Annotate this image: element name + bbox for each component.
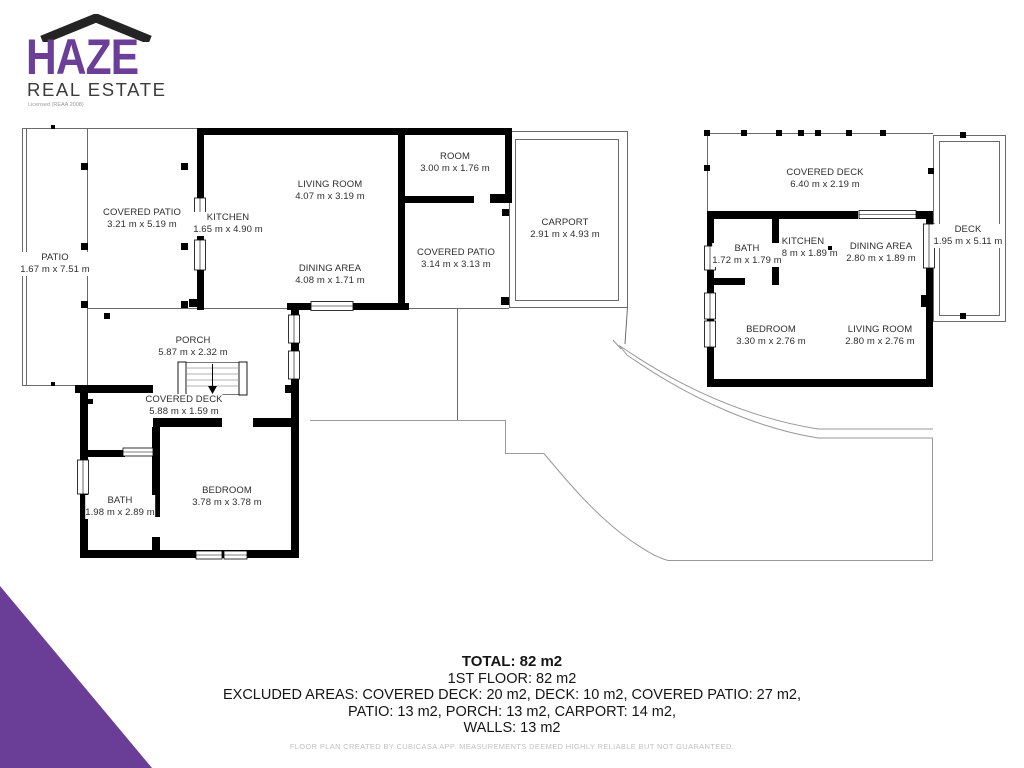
room-label-carport: CARPORT2.91 m x 4.93 m: [530, 217, 600, 241]
disclaimer-text: FLOOR PLAN CREATED BY CUBICASA APP. MEAS…: [0, 742, 1024, 751]
logo: HAZE REAL ESTATE Licensed (REAA 2008): [26, 14, 226, 110]
main-walls: [51, 125, 512, 558]
room-label-bedroom: BEDROOM3.78 m x 3.78 m: [192, 485, 262, 509]
stairs-down-arrow-icon: [208, 386, 217, 394]
room-label-covered-deck: COVERED DECK5.88 m x 1.59 m: [145, 394, 222, 418]
room-label-dining-area: DINING AREA4.08 m x 1.71 m: [295, 263, 365, 287]
room-label-covered-patio: COVERED PATIO3.21 m x 5.19 m: [103, 207, 181, 231]
room-label-2-bedroom: BEDROOM3.30 m x 2.76 m: [736, 324, 806, 348]
summary-first-floor: 1ST FLOOR: 82 m2: [0, 671, 1024, 688]
room-label-living-room: LIVING ROOM4.07 m x 3.19 m: [295, 179, 365, 203]
room-label-bath: BATH1.98 m x 2.89 m: [85, 495, 155, 519]
room-label-2-deck: DECK1.95 m x 5.11 m: [934, 224, 1003, 248]
room-label-porch: PORCH5.87 m x 2.32 m: [158, 335, 228, 359]
stairs: [178, 362, 247, 395]
room-label-2-living-room: LIVING ROOM2.80 m x 2.76 m: [845, 324, 915, 348]
room-label-room: ROOM3.00 m x 1.76 m: [420, 151, 490, 175]
room-label-patio: PATIO1.67 m x 7.51 m: [20, 252, 90, 276]
summary-total: TOTAL: 82 m2: [0, 654, 1024, 671]
summary-excluded-1: EXCLUDED AREAS: COVERED DECK: 20 m2, DEC…: [0, 687, 1024, 704]
room-label-2-bath: BATH1.72 m x 1.79 m: [712, 243, 782, 267]
room-label-kitchen: KITCHEN1.65 m x 4.90 m: [193, 212, 263, 236]
logo-subtitle: REAL ESTATE: [27, 80, 167, 100]
summary-excluded-2: PATIO: 13 m2, PORCH: 13 m2, CARPORT: 14 …: [0, 704, 1024, 721]
summary-excluded-3: WALLS: 13 m2: [0, 720, 1024, 737]
logo-license: Licensed (REAA 2008): [28, 102, 84, 108]
room-label-covered-patio-2: COVERED PATIO3.14 m x 3.13 m: [417, 247, 495, 271]
room-label-2-covered-deck: COVERED DECK6.40 m x 2.19 m: [786, 167, 863, 191]
area-summary: TOTAL: 82 m2 1ST FLOOR: 82 m2 EXCLUDED A…: [0, 654, 1024, 737]
logo-title: HAZE: [26, 32, 138, 82]
room-label-2-dining-area: DINING AREA2.80 m x 1.89 m: [846, 241, 916, 265]
terrain-lines: [310, 340, 933, 561]
